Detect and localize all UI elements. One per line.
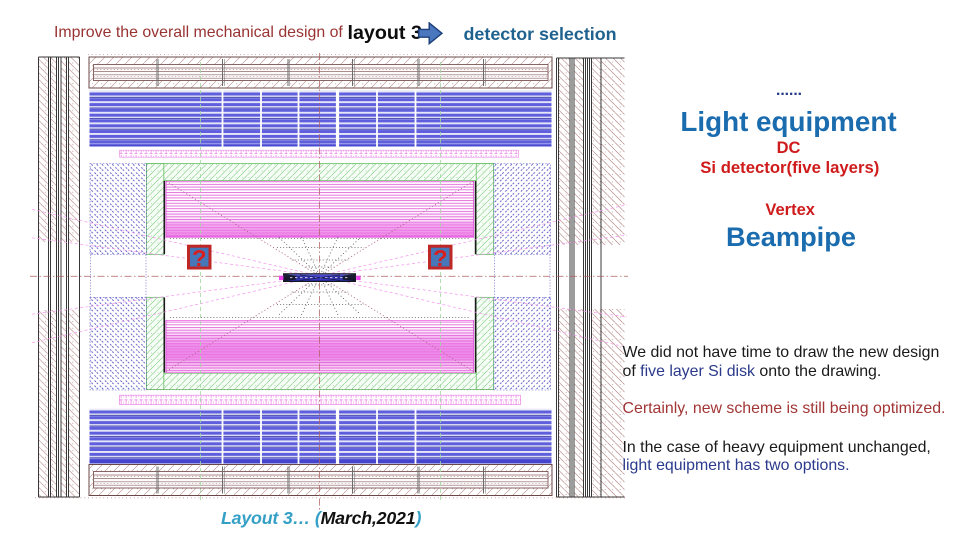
svg-text:?: ? bbox=[192, 245, 206, 271]
svg-text:?: ? bbox=[433, 245, 447, 271]
